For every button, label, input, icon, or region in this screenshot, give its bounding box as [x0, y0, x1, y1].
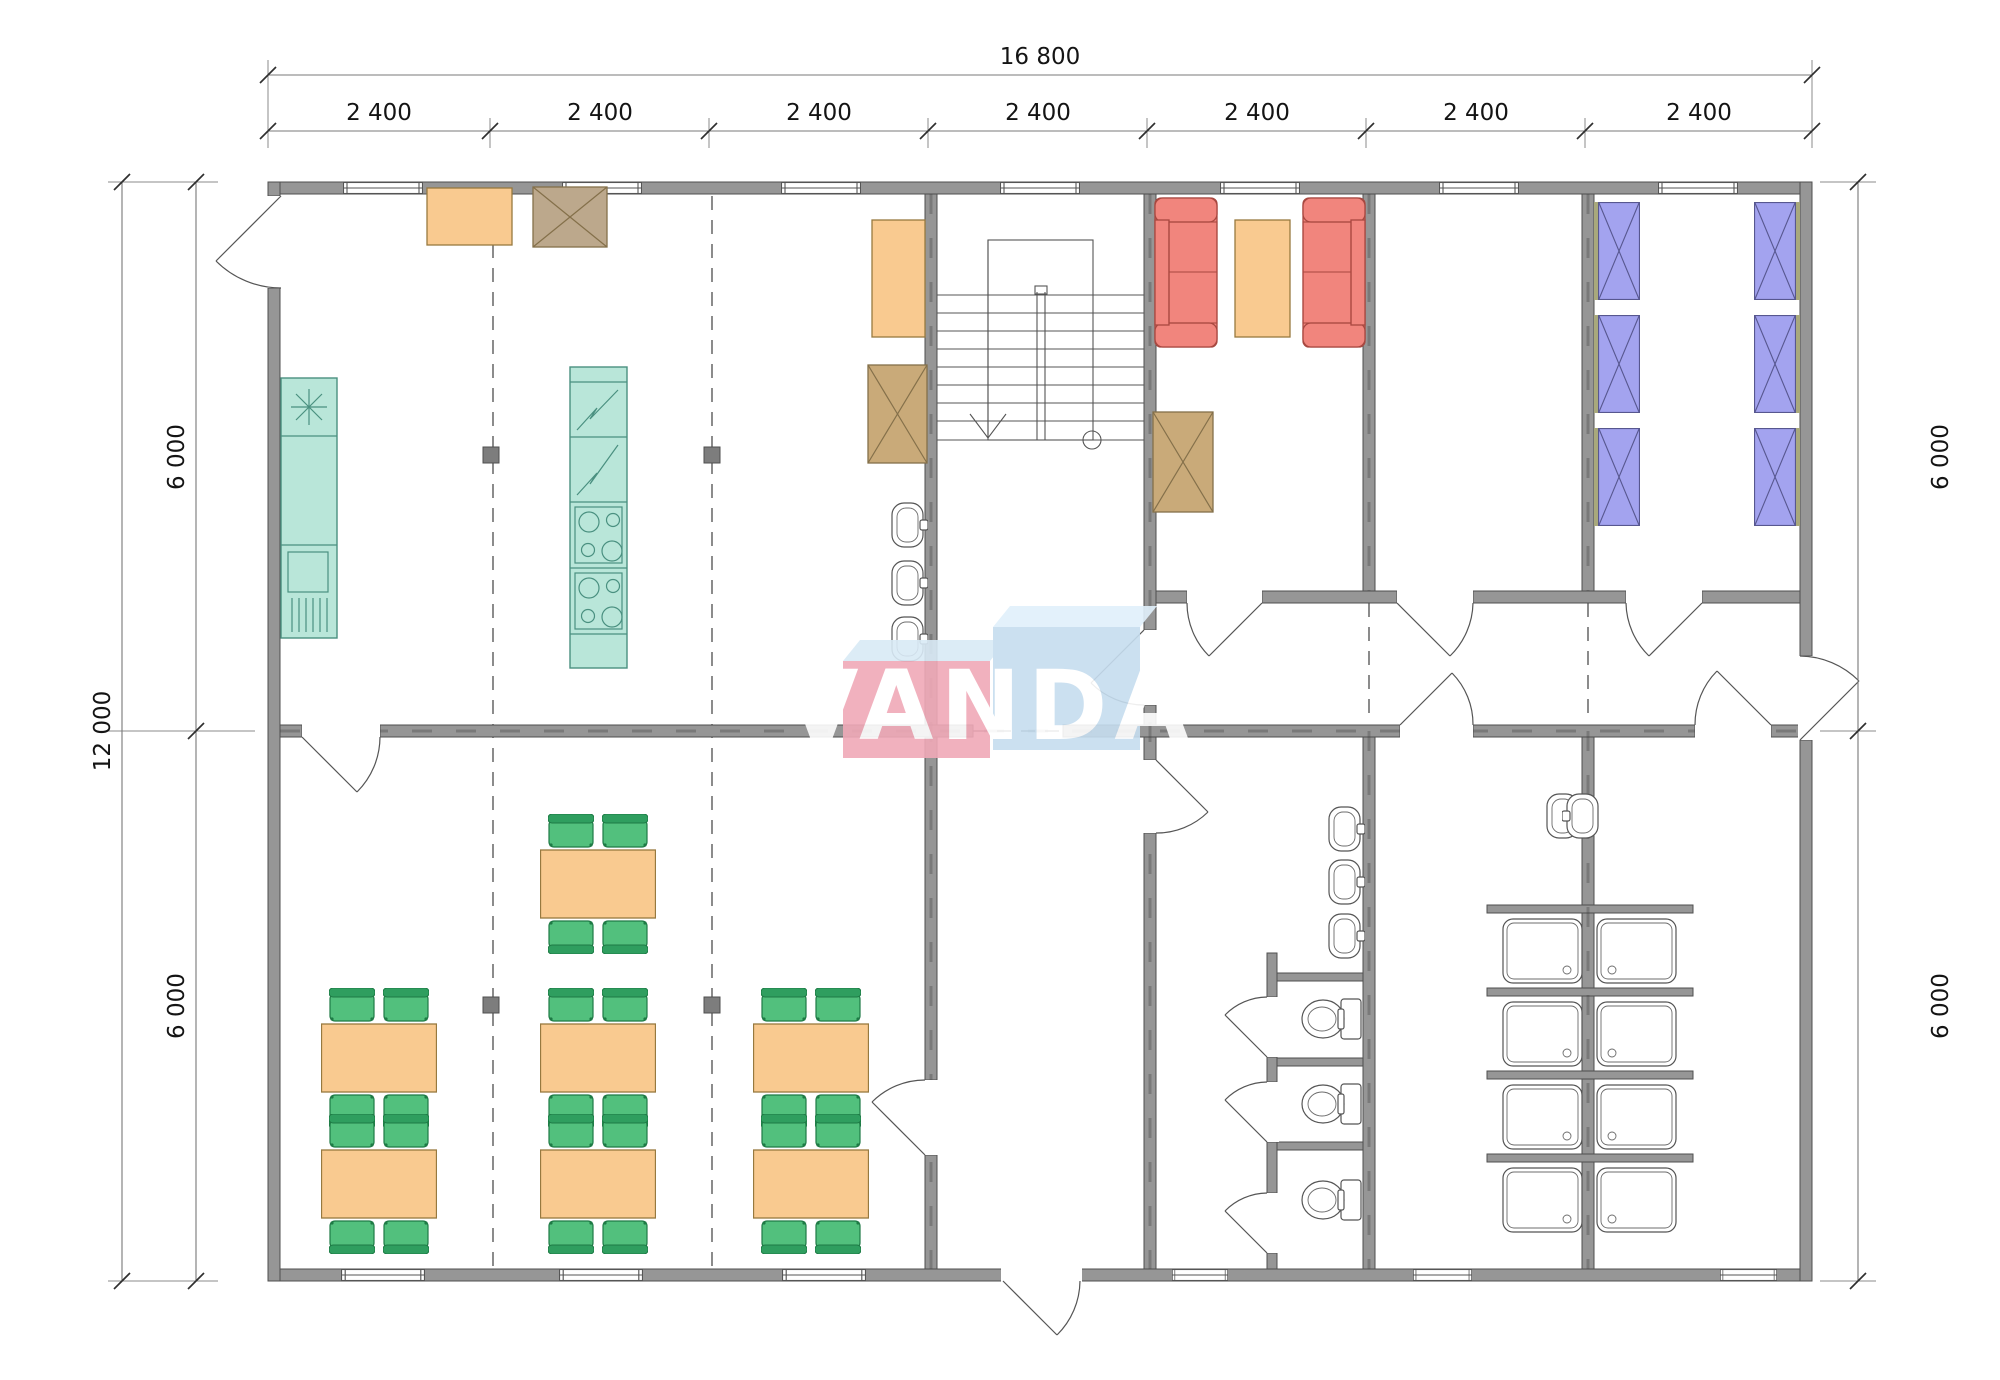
sink-star-icon: [291, 389, 327, 425]
bed: [1755, 429, 1796, 526]
exterior-wall-right-a: [1800, 182, 1812, 656]
vanda-watermark: VANDA: [784, 606, 1195, 762]
shower-tray: [1597, 1085, 1676, 1149]
door-lounge: [1187, 589, 1262, 656]
wc-room: [1302, 807, 1365, 1220]
window: [1439, 182, 1519, 194]
vanda-logo-text: VANDA: [784, 650, 1195, 762]
kitchen-counter: [281, 378, 337, 638]
dim-left-segment: 6 000: [164, 973, 190, 1039]
shower-tray: [1597, 919, 1676, 983]
door-bedroom-right: [1626, 589, 1702, 656]
stairwell: [937, 240, 1144, 449]
window: [781, 182, 861, 194]
washbasin: [892, 561, 928, 605]
dining-set: [754, 1114, 869, 1254]
window: [782, 1269, 866, 1281]
window: [1220, 182, 1300, 194]
dining-set: [322, 1114, 437, 1254]
exterior-wall-left-b: [268, 288, 280, 1281]
shower-tray: [1597, 1168, 1676, 1232]
door-wc-stall-3: [1225, 1193, 1279, 1253]
toilet: [1302, 1084, 1361, 1124]
bed: [1599, 203, 1640, 300]
dining-room: [322, 814, 869, 1254]
dim-bay: 2 400: [1666, 100, 1732, 126]
floor-plan-drawing: VANDA 16 800 2 400 2 400 2 400 2 400 2 4…: [0, 0, 2000, 1380]
door-wc-stall-1: [1225, 997, 1279, 1057]
dim-overall-height: 12 000: [90, 691, 116, 771]
dining-set: [322, 988, 437, 1128]
lounge: [1153, 198, 1365, 512]
dining-set: [754, 988, 869, 1128]
door-main-entrance: [1001, 1267, 1082, 1335]
window: [1720, 1269, 1777, 1281]
dimension-top: 16 800 2 400 2 400 2 400 2 400 2 400 2 4…: [260, 44, 1820, 148]
shower-tray: [1597, 1002, 1676, 1066]
window: [1000, 182, 1080, 194]
sofa: [1303, 198, 1365, 347]
floor-plan-page: VANDA 16 800 2 400 2 400 2 400 2 400 2 4…: [0, 0, 2000, 1380]
window: [341, 1269, 425, 1281]
washbasin: [1329, 914, 1365, 958]
column: [483, 997, 499, 1013]
shower-tray: [1503, 1002, 1582, 1066]
door-shower-left: [1400, 673, 1473, 739]
coffee-table: [1235, 220, 1290, 337]
shower-tray: [1503, 919, 1582, 983]
window: [1413, 1269, 1472, 1281]
dim-overall-width: 16 800: [1000, 44, 1080, 70]
dining-set: [541, 988, 656, 1128]
column: [704, 447, 720, 463]
wardrobe: [1153, 412, 1213, 512]
dim-bay: 2 400: [786, 100, 852, 126]
bed: [1599, 429, 1640, 526]
door-vestibule-wc: [1142, 760, 1208, 833]
kitchen-appliance-row: [570, 367, 627, 668]
worktable: [427, 188, 512, 245]
dim-bay: 2 400: [1005, 100, 1071, 126]
washbasin: [892, 503, 928, 547]
serving-table: [872, 220, 925, 337]
dim-bay: 2 400: [1224, 100, 1290, 126]
washbasin: [1329, 860, 1365, 904]
kitchen: [281, 187, 928, 668]
door-hall-dining: [872, 1080, 939, 1155]
wardrobe: [533, 187, 607, 247]
exterior-wall-right-b: [1800, 740, 1812, 1281]
door-corridor-exterior: [1798, 656, 1859, 740]
toilet: [1302, 1180, 1361, 1220]
shower-tray: [1503, 1085, 1582, 1149]
door-kitchen-exterior: [216, 196, 282, 288]
dining-set: [541, 814, 656, 954]
dimension-right: 6 000 6 000: [1820, 174, 1954, 1289]
washbasin: [1329, 807, 1365, 851]
window: [343, 182, 423, 194]
exterior-wall-left-a: [268, 182, 280, 196]
stair-direction-arrow: [970, 240, 1006, 438]
column: [704, 997, 720, 1013]
sofa: [1155, 198, 1217, 347]
door-kitchen-dining: [302, 723, 380, 792]
dining-set: [541, 1114, 656, 1254]
door-wc-stall-2: [1225, 1082, 1279, 1142]
bed: [1755, 316, 1796, 413]
bedroom: [1594, 202, 1800, 526]
column: [483, 447, 499, 463]
toilet: [1302, 999, 1361, 1039]
dim-bay: 2 400: [346, 100, 412, 126]
door-bedroom-middle: [1397, 589, 1473, 656]
bed: [1599, 316, 1640, 413]
door-shower-right: [1695, 671, 1771, 739]
dimension-left: 12 000 6 000 6 000: [90, 174, 255, 1289]
window: [1172, 1269, 1228, 1281]
dim-left-segment: 6 000: [164, 424, 190, 490]
dim-right-segment: 6 000: [1928, 424, 1954, 490]
dim-right-segment: 6 000: [1928, 973, 1954, 1039]
bed: [1755, 203, 1796, 300]
dim-bay: 2 400: [1443, 100, 1509, 126]
dim-bay: 2 400: [567, 100, 633, 126]
window: [1658, 182, 1738, 194]
window: [559, 1269, 643, 1281]
wardrobe: [868, 365, 927, 463]
shower-tray: [1503, 1168, 1582, 1232]
